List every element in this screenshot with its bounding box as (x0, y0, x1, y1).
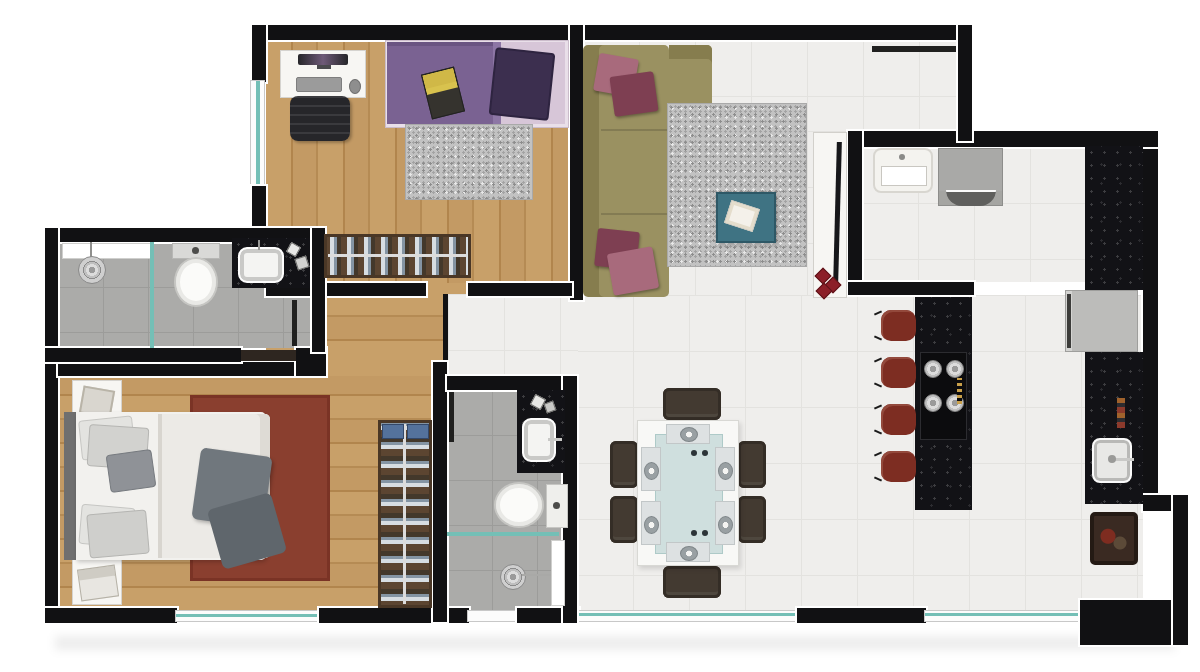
wall (45, 608, 177, 623)
wall (45, 348, 241, 362)
dining-chair (610, 496, 638, 543)
wine-glass (691, 450, 697, 456)
shower-niche (62, 243, 152, 259)
laundry-tank-faucet (899, 154, 905, 160)
spice-rack (1117, 398, 1125, 428)
plate (680, 427, 698, 442)
toilet-button (192, 247, 199, 254)
wall (252, 186, 266, 234)
kitchen-faucet-base (1108, 455, 1116, 463)
wall (848, 131, 1158, 147)
door-threshold (241, 350, 296, 361)
wardrobe-rail (403, 424, 406, 604)
refrigerator (1065, 290, 1138, 352)
bed-pillow (489, 47, 556, 121)
laundry-counter (1085, 146, 1143, 290)
plate (644, 516, 659, 534)
bar-stool (881, 451, 916, 482)
bed-headboard (64, 412, 76, 560)
dining-chair (738, 441, 766, 488)
kitchen-mat (1090, 512, 1138, 565)
sofa-cushion (609, 71, 658, 117)
monitor-stand (317, 65, 331, 69)
wall (1080, 600, 1188, 645)
bed-pillow (86, 509, 150, 558)
shower-niche (551, 540, 565, 606)
entry-door (872, 46, 956, 52)
shower-glass-partition (150, 242, 154, 348)
wall (958, 25, 972, 141)
dining-chair (663, 388, 721, 420)
dining-chair (610, 441, 638, 488)
laundry-tank-basin (881, 166, 927, 186)
plate (718, 462, 733, 480)
wall (1143, 133, 1158, 510)
dining-chair (738, 496, 766, 543)
wine-glass (691, 530, 697, 536)
monitor (298, 54, 348, 65)
wardrobe-box (382, 424, 404, 439)
shower-hose (522, 574, 552, 576)
window-glass (176, 614, 320, 617)
window-glass (925, 613, 1081, 616)
bar-stool (881, 310, 916, 341)
dining-table-glass (655, 434, 723, 554)
wall (468, 283, 572, 296)
wall (58, 362, 300, 376)
vanity-faucet (548, 438, 562, 441)
wall (296, 348, 326, 376)
wall (797, 608, 926, 623)
burner (924, 360, 942, 378)
vanity-faucet (258, 240, 260, 250)
wall (1173, 495, 1188, 645)
window (467, 610, 519, 622)
plate (680, 546, 698, 561)
shower-glass-partition (447, 532, 559, 536)
bar-stool (881, 357, 916, 388)
window (924, 610, 1082, 622)
window (577, 610, 800, 622)
floor-plan (0, 0, 1200, 672)
wall (252, 25, 972, 40)
sofa-cushion (607, 246, 660, 295)
plate (644, 462, 659, 480)
shower-drain (78, 256, 106, 284)
bedroom-rug (405, 124, 533, 200)
wine-glass (702, 450, 708, 456)
bathroom-door (292, 300, 297, 346)
plate (718, 516, 733, 534)
burner (924, 394, 942, 412)
wall (443, 294, 448, 364)
bathroom-door (449, 392, 454, 442)
cooktop-knobs (957, 378, 962, 404)
wall (45, 228, 58, 622)
vanity-sink (238, 247, 284, 283)
window-glass (256, 81, 260, 187)
toilet-bowl (174, 257, 218, 307)
toilet-button (553, 502, 560, 509)
wall (447, 376, 577, 390)
bar-stool (881, 404, 916, 435)
dining-chair (663, 566, 721, 598)
wall (570, 25, 583, 300)
books-on-nightstand (77, 565, 119, 602)
wine-glass (702, 530, 708, 536)
mouse (349, 79, 361, 94)
wall (848, 282, 974, 295)
wall (433, 362, 447, 622)
window (250, 80, 265, 188)
wardrobe-box (407, 424, 429, 439)
wall (848, 131, 862, 295)
bed-pillow-gray (106, 449, 157, 493)
burner (946, 360, 964, 378)
keyboard (296, 77, 342, 92)
closet-rail (328, 254, 467, 257)
window-glass (578, 613, 799, 616)
floor-strip (448, 294, 578, 378)
office-chair (290, 96, 350, 141)
window (175, 610, 321, 622)
wall (252, 25, 266, 82)
plan-shadow (55, 636, 1175, 650)
refrigerator-handle (1067, 294, 1071, 348)
shower-drain (500, 564, 526, 590)
toilet-bowl (494, 482, 544, 528)
